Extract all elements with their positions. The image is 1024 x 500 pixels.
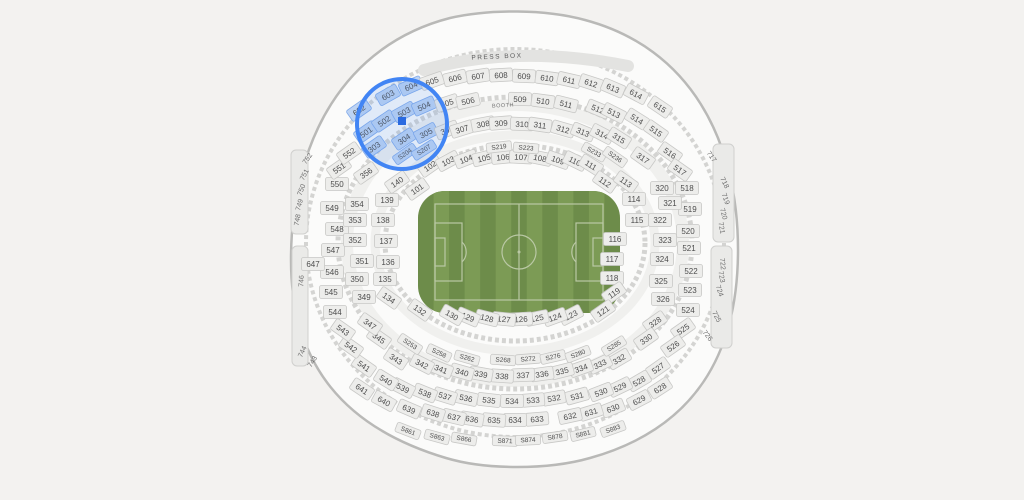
section-label: 634 [508,416,522,425]
section-label: 350 [350,275,364,284]
section-309[interactable]: 309 [489,116,513,131]
section-label: S223 [518,144,534,152]
section-label: 520 [681,227,695,236]
section-633[interactable]: 633 [525,412,549,427]
section-320[interactable]: 320 [651,182,674,195]
section-510[interactable]: 510 [531,93,556,109]
section-608[interactable]: 608 [489,68,513,82]
section-S272[interactable]: S272 [515,353,541,365]
section-label: 324 [655,255,669,264]
section-136[interactable]: 136 [377,256,400,269]
section-549[interactable]: 549 [321,202,344,215]
section-label: 522 [684,267,698,276]
section-519[interactable]: 519 [679,203,702,216]
section-S268[interactable]: S268 [490,354,516,366]
section-label: 546 [325,268,339,277]
section-label: 722 [718,258,726,270]
section-label: 320 [655,184,669,193]
section-label: 351 [355,257,369,266]
section-535[interactable]: 535 [477,392,501,408]
section-322[interactable]: 322 [649,214,672,227]
section-label: 354 [350,200,364,209]
section-520[interactable]: 520 [677,225,700,238]
section-label: 107 [514,153,528,163]
section-label: 106 [496,152,511,162]
section-722[interactable]: 722 [718,258,726,270]
section-label: 115 [631,216,644,225]
section-label: 609 [517,72,531,82]
section-label: 139 [380,196,394,205]
section-label: S871 [497,438,513,446]
section-label: 138 [376,216,390,225]
section-label: 137 [379,237,393,246]
section-647[interactable]: 647 [302,258,325,271]
section-label: 323 [658,236,672,245]
section-label: 544 [328,308,342,317]
section-S223[interactable]: S223 [513,142,539,154]
section-label: 608 [494,71,508,81]
section-135[interactable]: 135 [374,273,397,286]
section-label: S268 [495,356,511,364]
section-338[interactable]: 338 [490,369,514,384]
section-635[interactable]: 635 [482,413,506,428]
section-label: 337 [516,371,530,381]
section-352[interactable]: 352 [344,234,367,247]
section-label: 547 [326,246,340,255]
section-353[interactable]: 353 [344,214,367,227]
section-label: 523 [683,286,697,295]
section-label: 549 [325,204,339,213]
section-324[interactable]: 324 [651,253,674,266]
section-609[interactable]: 609 [512,69,535,83]
section-746[interactable]: 746 [298,275,305,287]
field [418,191,620,313]
section-label: 533 [526,395,541,405]
section-524[interactable]: 524 [677,304,700,317]
section-label: 746 [298,275,305,287]
stadium-svg: PRESS BOX6026036046056066076086096106116… [0,0,1024,500]
section-116[interactable]: 116 [604,233,627,246]
section-label: 510 [536,96,551,107]
section-350[interactable]: 350 [346,273,369,286]
section-label: 310 [515,120,529,130]
section-325[interactable]: 325 [650,275,673,288]
section-label: 325 [654,277,668,286]
section-311[interactable]: 311 [528,117,553,133]
section-label: 633 [530,414,545,424]
section-523[interactable]: 523 [679,284,702,297]
section-545[interactable]: 545 [320,286,343,299]
section-610[interactable]: 610 [535,70,560,86]
section-label: 309 [494,118,509,128]
section-label: 116 [609,235,622,244]
section-label: 352 [348,236,362,245]
section-550[interactable]: 550 [326,178,349,191]
section-label: 326 [656,295,670,304]
section-label: 519 [683,205,697,214]
section-547[interactable]: 547 [322,244,345,257]
section-label: 322 [653,216,667,225]
section-label: 610 [540,73,555,84]
section-label: 524 [681,306,695,315]
section-label: 118 [606,274,619,283]
section-label: 117 [606,255,619,264]
section-354[interactable]: 354 [346,198,369,211]
section-label: 509 [513,95,527,104]
section-label: 548 [330,225,344,234]
section-326[interactable]: 326 [652,293,675,306]
section-137[interactable]: 137 [375,235,398,248]
section-138[interactable]: 138 [372,214,395,227]
section-label: 521 [682,244,696,253]
section-533[interactable]: 533 [521,393,545,408]
section-518[interactable]: 518 [676,182,699,195]
section-534[interactable]: 534 [500,394,523,407]
section-label: 518 [680,184,694,193]
section-label: 550 [330,180,344,189]
section-label: 135 [378,275,392,284]
stadium-seating-map: PRESS BOX6026036046056066076086096106116… [0,0,1024,500]
section-521[interactable]: 521 [678,242,701,255]
section-139[interactable]: 139 [376,194,399,207]
section-323[interactable]: 323 [654,234,677,247]
section-label: 136 [381,258,395,267]
section-634[interactable]: 634 [504,414,527,427]
seat-marker[interactable] [398,117,406,125]
section-label: 349 [357,293,371,302]
section-321[interactable]: 321 [659,197,682,210]
booth-label: BOOTH [492,102,514,109]
section-label: 545 [324,288,338,297]
section-label: 635 [487,415,502,425]
section-label: S874 [520,437,536,445]
section-349[interactable]: 349 [353,291,376,304]
section-label: 338 [495,372,509,382]
section-label: 534 [505,397,519,406]
section-337[interactable]: 337 [511,368,535,382]
section-label: 647 [306,260,320,269]
section-label: 126 [514,315,528,325]
section-114[interactable]: 114 [623,193,646,206]
section-label: 311 [533,120,547,131]
section-label: 321 [663,199,677,208]
section-115[interactable]: 115 [626,214,649,227]
section-S874[interactable]: S874 [515,434,541,445]
section-117[interactable]: 117 [601,253,624,266]
section-label: 353 [348,216,362,225]
section-351[interactable]: 351 [351,255,374,268]
section-S871[interactable]: S871 [492,436,518,447]
section-522[interactable]: 522 [680,265,703,278]
section-label: 535 [482,395,497,406]
section-544[interactable]: 544 [324,306,347,319]
section-label: 114 [628,195,641,204]
section-label: S272 [520,355,536,363]
